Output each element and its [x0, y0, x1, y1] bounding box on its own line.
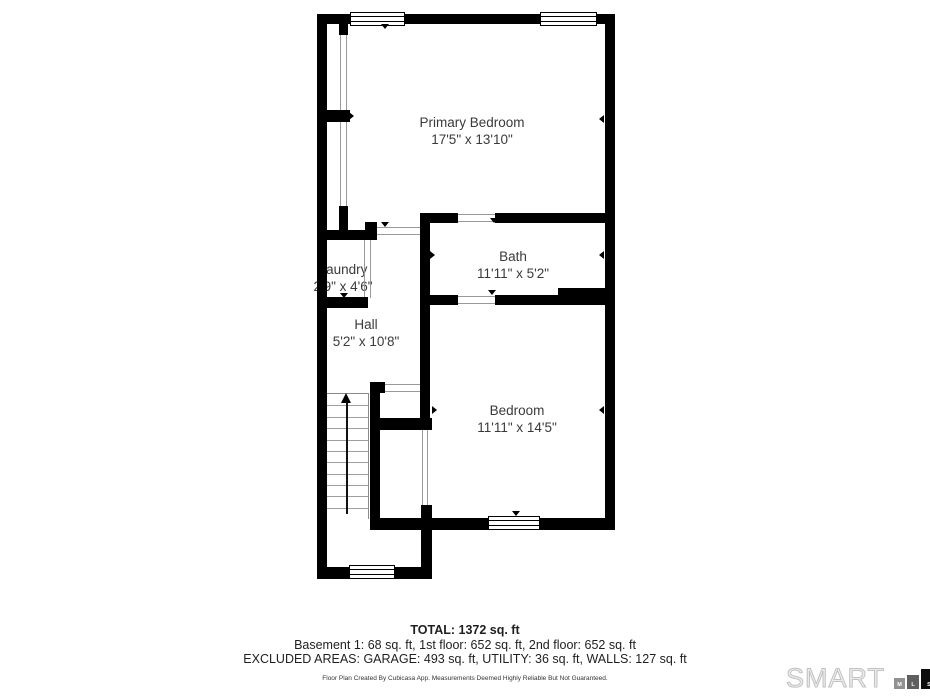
- stair-tread: [327, 462, 368, 463]
- room-label-bedroom: Bedroom 11'11" x 14'5": [477, 403, 557, 436]
- stair-tread: [327, 405, 368, 406]
- wall-hall-bath-divider: [420, 305, 430, 430]
- room-name: Bath: [477, 249, 549, 266]
- mls-square-s: S: [921, 669, 930, 689]
- opening-line-laundry-2: [370, 240, 371, 298]
- direction-tick: [490, 218, 498, 223]
- window-top-right: [540, 12, 597, 26]
- room-dimensions: 5'2" x 10'8": [333, 334, 400, 351]
- window-top-left: [350, 12, 405, 26]
- opening-line-landing-1: [385, 384, 420, 385]
- wall-niche-bottom-block: [339, 206, 348, 232]
- opening-line-landing-2: [385, 391, 420, 392]
- stair-tread: [327, 417, 368, 418]
- room-name: Hall: [333, 317, 400, 334]
- direction-tick: [349, 112, 354, 120]
- total-area-text: TOTAL: 1372 sq. ft: [0, 623, 930, 637]
- stair-direction-line: [346, 402, 348, 514]
- direction-tick: [488, 290, 496, 295]
- room-dimensions: 11'11" x 14'5": [477, 420, 557, 437]
- wall-left-stub: [317, 110, 350, 122]
- opening-line-hall-top-1: [377, 227, 420, 228]
- stair-tread: [327, 451, 368, 452]
- room-label-hall: Hall 5'2" x 10'8": [333, 317, 400, 350]
- staircase: [327, 393, 369, 519]
- mls-square-l: L: [907, 675, 919, 689]
- wall-bath-bottom-thick: [558, 288, 605, 305]
- opening-line-closet-2: [427, 430, 428, 507]
- window-stairwell-bottom: [349, 565, 395, 579]
- wall-laundry-bottom: [317, 297, 368, 308]
- wall-hall-opening-cap: [365, 222, 377, 240]
- room-label-primary-bedroom: Primary Bedroom 17'5" x 13'10": [419, 115, 524, 148]
- floor-areas-text: Basement 1: 68 sq. ft, 1st floor: 652 sq…: [0, 638, 930, 652]
- opening-line-laundry-1: [364, 240, 365, 298]
- mls-square-m: M: [894, 678, 905, 689]
- opening-line-bath-top-1: [458, 214, 495, 215]
- smart-logo-text: SMART: [786, 665, 885, 691]
- room-dimensions: 11'11" x 5'2": [477, 266, 549, 283]
- direction-tick: [599, 251, 604, 259]
- wall-bath-left: [420, 213, 430, 305]
- opening-line-hall-top-2: [377, 234, 420, 235]
- wall-bath-top-right: [495, 213, 605, 223]
- stair-tread: [327, 496, 368, 497]
- room-name: Primary Bedroom: [419, 115, 524, 132]
- mls-squares: M L S: [894, 669, 930, 691]
- direction-tick: [381, 222, 389, 227]
- direction-tick: [599, 115, 604, 123]
- wall-niche-top-block: [339, 24, 348, 35]
- opening-line-closet-1: [422, 430, 423, 507]
- opening-line-bath-bottom-2: [458, 303, 495, 304]
- floor-plan-page: Primary Bedroom 17'5" x 13'10" Bath 11'1…: [0, 0, 930, 697]
- direction-tick: [512, 511, 520, 516]
- stair-tread: [327, 440, 368, 441]
- stair-tread: [327, 508, 368, 509]
- direction-tick: [432, 406, 437, 414]
- direction-tick: [512, 300, 520, 305]
- stair-tread: [327, 485, 368, 486]
- wall-stairwell: [370, 418, 380, 530]
- stair-tread: [327, 474, 368, 475]
- room-name: Bedroom: [477, 403, 557, 420]
- stair-tread: [327, 428, 368, 429]
- room-label-bath: Bath 11'11" x 5'2": [477, 249, 549, 282]
- opening-line-bath-bottom-1: [458, 296, 495, 297]
- wall-outer-right: [605, 14, 615, 530]
- direction-tick: [599, 406, 604, 414]
- up-arrow-icon: [341, 393, 351, 403]
- direction-tick: [381, 24, 389, 29]
- direction-tick: [340, 293, 348, 298]
- wall-bath-bottom-left: [420, 295, 458, 305]
- window-bedroom-bottom: [488, 516, 540, 530]
- room-dimensions: 17'5" x 13'10": [419, 132, 524, 149]
- smartmls-logo: SMART M L S: [786, 657, 930, 691]
- direction-tick: [430, 251, 435, 259]
- wall-right-connector: [421, 505, 432, 579]
